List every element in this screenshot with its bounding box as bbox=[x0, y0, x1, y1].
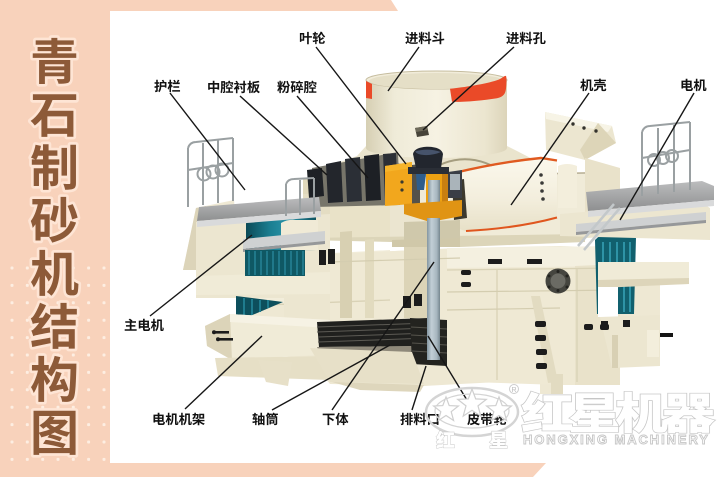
svg-text:HONGXING MACHINERY: HONGXING MACHINERY bbox=[523, 432, 710, 447]
svg-text:R: R bbox=[511, 387, 516, 394]
